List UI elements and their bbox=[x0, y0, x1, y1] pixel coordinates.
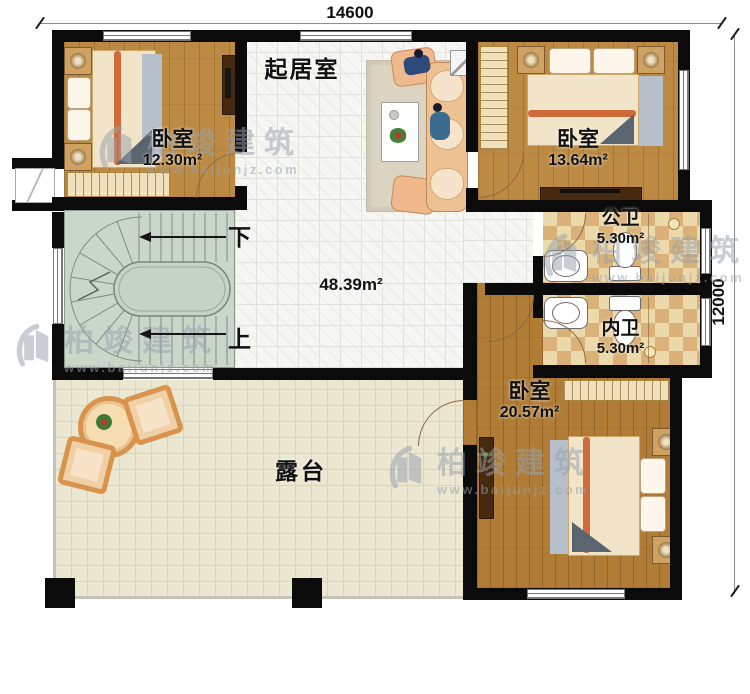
indicator-dot bbox=[483, 452, 488, 457]
dimension-line-right bbox=[734, 36, 735, 594]
dimension-top: 14600 bbox=[310, 3, 390, 23]
terrace-rail-bottom bbox=[53, 596, 463, 599]
closet-bedroom1 bbox=[66, 172, 170, 197]
stairs-down-arrowhead-icon bbox=[139, 232, 151, 242]
room-label-terrace: 露台 bbox=[266, 458, 336, 484]
plant-icon bbox=[389, 128, 407, 143]
cabinet-bedroom3 bbox=[479, 437, 494, 519]
wall bbox=[52, 197, 235, 210]
plant-icon bbox=[96, 414, 112, 430]
footer: 三层平面图1:100 本层建筑面积：124.92m² 层高：3.3m 柏竣建筑 … bbox=[0, 618, 750, 694]
room-label-bedroom3: 卧室20.57m² bbox=[472, 380, 587, 423]
person-icon bbox=[430, 112, 450, 140]
person-head-icon bbox=[433, 103, 442, 112]
wall bbox=[52, 30, 64, 160]
living-area-value: 48.39m² bbox=[308, 275, 394, 295]
floor-plan-canvas: 下 上 bbox=[0, 0, 750, 694]
window bbox=[300, 31, 412, 41]
dimension-tick bbox=[730, 585, 740, 598]
wall bbox=[52, 368, 123, 380]
closet-bedroom2 bbox=[480, 46, 508, 150]
room-label-bedroom2: 卧室13.64m² bbox=[518, 128, 638, 171]
wall bbox=[235, 42, 247, 152]
hall-alcove-floor bbox=[463, 212, 533, 283]
tv-icon bbox=[560, 189, 620, 193]
wall bbox=[533, 295, 543, 318]
wall bbox=[213, 368, 466, 380]
terrace-rail-left bbox=[53, 380, 56, 598]
window bbox=[527, 589, 625, 599]
wall bbox=[466, 30, 478, 152]
terrace-pillar bbox=[45, 578, 75, 608]
wall bbox=[533, 365, 712, 378]
stairs-up-arrowhead-icon bbox=[139, 329, 151, 339]
stairs-up-label: 上 bbox=[228, 320, 251, 354]
wall bbox=[670, 378, 682, 600]
wall bbox=[463, 445, 477, 588]
dimension-tick bbox=[730, 28, 740, 41]
person-head-icon bbox=[414, 49, 423, 58]
stairs-down-label: 下 bbox=[228, 218, 251, 252]
bay-window bbox=[15, 168, 55, 203]
room-label-bedroom1: 卧室12.30m² bbox=[115, 128, 230, 171]
toilet-icon bbox=[609, 296, 641, 311]
window bbox=[53, 248, 63, 324]
room-label-living: 起居室 bbox=[252, 56, 352, 82]
window bbox=[103, 31, 191, 41]
brand-logo-icon bbox=[12, 321, 56, 371]
wall bbox=[52, 212, 64, 248]
stairs-down-arrow-line bbox=[150, 236, 226, 238]
toilet-icon bbox=[609, 266, 641, 281]
monitor-icon bbox=[225, 68, 231, 98]
wall bbox=[485, 283, 712, 295]
window bbox=[679, 70, 689, 170]
dimension-line-top bbox=[40, 23, 722, 24]
stairs-up-arrow-line bbox=[150, 333, 226, 335]
window bbox=[123, 369, 213, 379]
room-label-public-bath: 公卫5.30m² bbox=[568, 208, 673, 247]
wall bbox=[533, 256, 543, 283]
terrace-pillar bbox=[292, 578, 322, 608]
room-label-private-bath: 内卫5.30m² bbox=[568, 318, 673, 357]
dimension-right: 12000 bbox=[709, 252, 729, 352]
